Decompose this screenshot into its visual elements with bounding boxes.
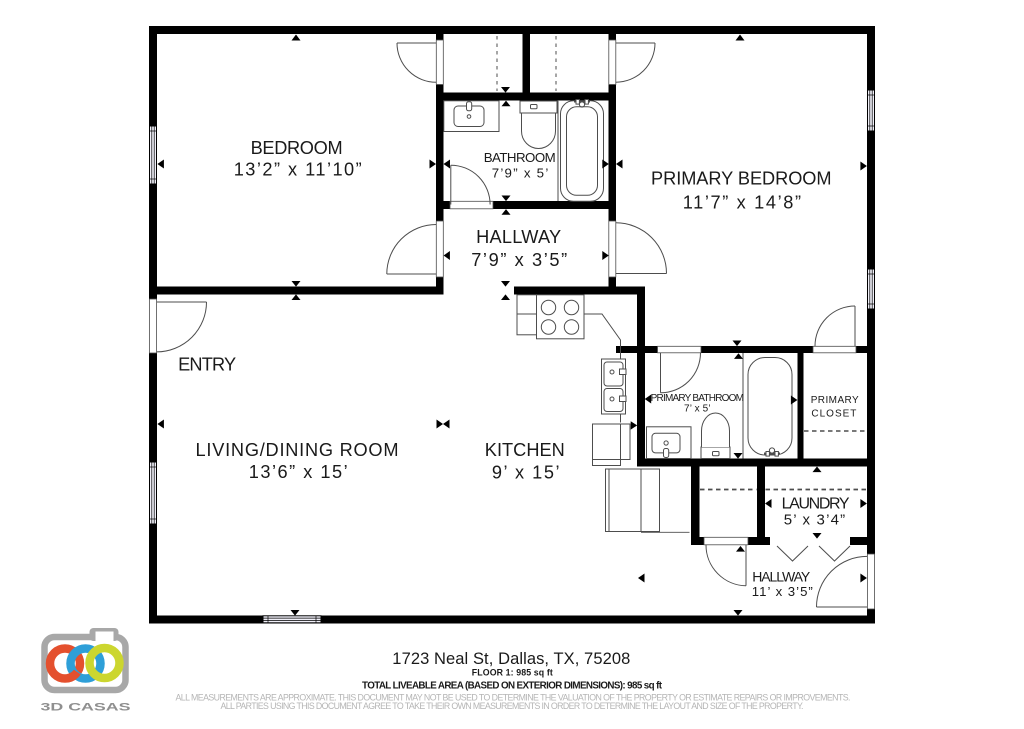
svg-text:13’6” x 15’: 13’6” x 15’ xyxy=(249,462,348,482)
svg-text:ALL PARTIES USING THIS DOCUMEN: ALL PARTIES USING THIS DOCUMENT AGREE TO… xyxy=(221,701,804,711)
svg-text:PRIMARY BEDROOM: PRIMARY BEDROOM xyxy=(651,169,832,189)
svg-text:BEDROOM: BEDROOM xyxy=(251,138,343,158)
svg-text:11’7” x 14’8”: 11’7” x 14’8” xyxy=(683,193,801,213)
svg-text:CLOSET: CLOSET xyxy=(811,408,856,419)
svg-text:5’ x 3’4”: 5’ x 3’4” xyxy=(784,512,845,529)
svg-text:7’9” x 3’5”: 7’9” x 3’5” xyxy=(471,250,567,270)
svg-text:7’9” x 5’: 7’9” x 5’ xyxy=(492,166,549,181)
svg-text:13’2” x 11’10”: 13’2” x 11’10” xyxy=(234,159,362,179)
svg-text:7’ x 5’: 7’ x 5’ xyxy=(684,404,711,415)
svg-text:11’ x 3’5”: 11’ x 3’5” xyxy=(752,584,813,599)
svg-text:3D CASAS: 3D CASAS xyxy=(41,702,131,714)
svg-text:KITCHEN: KITCHEN xyxy=(485,440,565,460)
svg-text:LIVING/DINING ROOM: LIVING/DINING ROOM xyxy=(196,440,399,460)
svg-text:ENTRY: ENTRY xyxy=(178,354,236,374)
svg-text:HALLWAY: HALLWAY xyxy=(752,569,811,585)
svg-text:1723 Neal St, Dallas, TX, 7520: 1723 Neal St, Dallas, TX, 75208 xyxy=(392,650,630,668)
svg-text:HALLWAY: HALLWAY xyxy=(476,227,561,247)
svg-text:LAUNDRY: LAUNDRY xyxy=(782,496,850,513)
svg-text:BATHROOM: BATHROOM xyxy=(484,150,556,165)
svg-text:TOTAL LIVEABLE AREA (BASED ON: TOTAL LIVEABLE AREA (BASED ON EXTERIOR D… xyxy=(362,680,663,691)
svg-text:PRIMARY BATHROOM: PRIMARY BATHROOM xyxy=(651,393,744,404)
svg-text:PRIMARY: PRIMARY xyxy=(811,395,859,406)
svg-text:FLOOR 1: 985 sq ft: FLOOR 1: 985 sq ft xyxy=(472,668,553,678)
